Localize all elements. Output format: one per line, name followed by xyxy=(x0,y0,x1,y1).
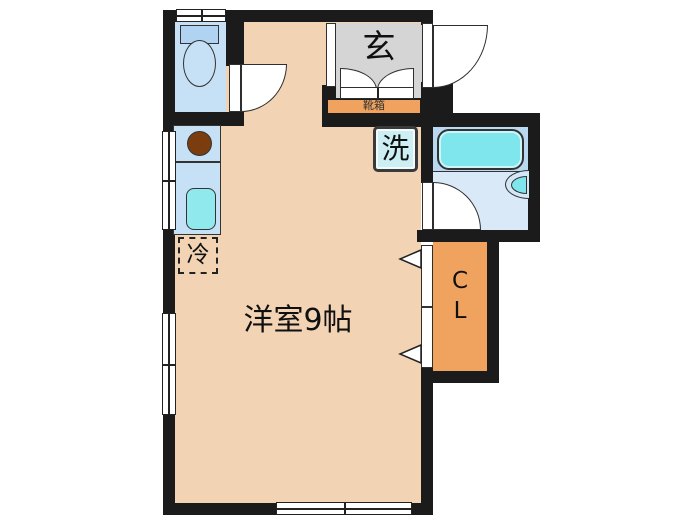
wall-left xyxy=(163,10,175,515)
closet-door-arrow-icon xyxy=(397,248,423,270)
washing-machine: 洗 xyxy=(373,126,418,172)
wall-frontdoor-bottom xyxy=(421,82,453,127)
window-left-kitchen xyxy=(162,131,176,230)
bathtub xyxy=(437,129,524,170)
bathroom-door-leaf xyxy=(422,182,433,230)
front-door-swing xyxy=(433,25,488,88)
closet-label: C L xyxy=(433,266,487,326)
room-label: 洋室9帖 xyxy=(175,303,421,339)
wall-closet-bottom xyxy=(421,371,499,383)
wall-bath-left xyxy=(421,125,433,183)
wall-bath-right xyxy=(528,113,540,242)
kitchen-sink xyxy=(186,188,216,230)
window-top xyxy=(176,9,226,22)
shoe-box-label: 靴箱 xyxy=(328,100,420,112)
entrance-partition xyxy=(326,23,336,87)
window-bottom xyxy=(276,502,412,515)
closet-label-line2: L xyxy=(433,296,487,326)
toilet-bowl xyxy=(183,40,216,87)
washing-machine-label: 洗 xyxy=(381,132,409,165)
front-door-leaf xyxy=(422,23,433,88)
wall-toilet-bottom xyxy=(163,112,244,126)
toilet-door-leaf xyxy=(229,64,241,112)
wall-bath-bottom xyxy=(417,230,540,242)
wall-closet-right xyxy=(487,230,499,383)
window-left-room xyxy=(162,313,176,415)
wall-right-lower xyxy=(421,368,433,515)
floorplan: 靴箱 冷 洗 xyxy=(0,0,700,525)
entrance-label: 玄 xyxy=(336,29,422,65)
stove-burner xyxy=(187,131,212,156)
refrigerator: 冷 xyxy=(178,237,218,274)
refrigerator-label: 冷 xyxy=(187,242,210,268)
closet-label-line1: C xyxy=(433,266,487,296)
closet-door-arrow-icon xyxy=(397,343,423,365)
shoebox-door-panel xyxy=(340,87,414,99)
shoe-box: 靴箱 xyxy=(326,98,422,115)
wall-toilet-right xyxy=(226,10,244,66)
